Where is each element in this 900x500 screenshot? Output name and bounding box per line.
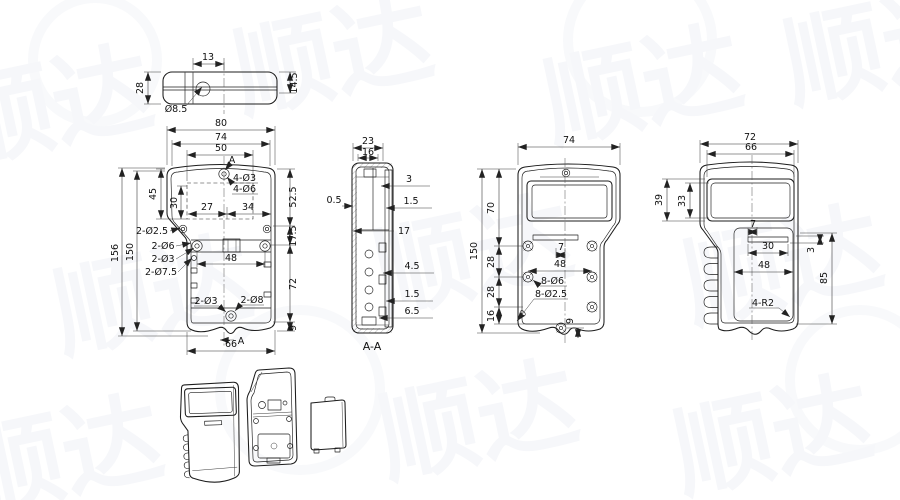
hole-label: 2-Ø6 [152, 241, 175, 252]
watermark-text: 顺达 [0, 28, 163, 184]
dim-label: 28 [486, 256, 497, 268]
dim-label: 33 [677, 195, 688, 207]
dim-label: 45 [148, 188, 159, 200]
dim-label: 48 [225, 253, 237, 264]
callout-4xO3-4xO6: 4-Ø3 4-Ø6 [227, 173, 258, 195]
hole-label: 8-Ø2.5 [535, 289, 567, 300]
dim-52-5: 52.5 [273, 169, 299, 226]
dim-label: 72 [288, 278, 299, 290]
dim-label: 48 [758, 260, 770, 271]
dim-label: 17 [398, 226, 410, 237]
watermark-text: 顺达 [223, 0, 443, 134]
dim-label: 9 [565, 318, 576, 324]
dim-66: 66 [707, 142, 794, 177]
dim-label: 74 [215, 132, 227, 143]
top-view-dim-13: 13 [193, 52, 224, 70]
dim-label: 156 [110, 244, 121, 262]
dim-label: 34 [242, 202, 254, 213]
dim-label: 48 [554, 259, 566, 270]
screw-boss [260, 241, 270, 251]
dim-label: 4.5 [404, 261, 419, 272]
dim-label: 28 [486, 286, 497, 298]
dim-label: 85 [819, 272, 830, 284]
dim-label: 9 [288, 325, 299, 331]
hole-label: 4-Ø3 [233, 173, 256, 184]
screw-boss [587, 302, 597, 312]
screw-boss [587, 272, 597, 282]
dim-label: 7 [558, 242, 564, 253]
dim-label: 6.5 [404, 306, 419, 317]
dim-label: 16 [486, 310, 497, 322]
dim-label: 17.5 [288, 225, 299, 246]
dim-label: 1.5 [404, 289, 419, 300]
isometric-battery-cover [311, 397, 346, 453]
dim-label: 23 [362, 136, 374, 147]
engineering-drawing-page: 顺达 顺达 顺达 顺达 顺达 顺达 顺达 顺达 顺达 顺达 13 [0, 0, 900, 500]
dim-label: 30 [169, 197, 180, 209]
dim-label: 7 [750, 219, 756, 230]
hole-label: 2-Ø2.5 [136, 226, 168, 237]
dim-label: 50 [215, 143, 227, 154]
hole-label: 2-Ø7.5 [145, 267, 177, 278]
hole-label: 2-Ø3 [195, 296, 218, 307]
dim-label: 52.5 [288, 186, 299, 207]
dim-label: 3 [806, 247, 817, 253]
hole-label: 2-Ø3 [152, 254, 175, 265]
dim-label: 74 [563, 135, 575, 146]
hole-label: Ø8.5 [165, 104, 188, 115]
callout-0-5: 0.5 [326, 195, 353, 206]
watermark-text: 顺达 [773, 0, 900, 124]
enclosure-drawing: 顺达 顺达 顺达 顺达 顺达 顺达 顺达 顺达 顺达 顺达 13 [0, 0, 900, 500]
dim-16: 16 [358, 147, 378, 161]
hole-label: 2-Ø8 [241, 295, 264, 306]
dim-label: 66 [225, 339, 237, 350]
section-title: A-A [363, 340, 382, 353]
dim-label: 13 [202, 52, 214, 63]
dim-label: 1.5 [403, 196, 418, 207]
radius-label: 4-R2 [752, 298, 774, 309]
dim-label: 150 [125, 243, 136, 261]
dim-label: 0.5 [326, 195, 341, 206]
iso-back-details [251, 372, 293, 463]
dim-label: 30 [762, 241, 774, 252]
dim-label: 80 [215, 118, 227, 129]
dim-label: 70 [486, 202, 497, 214]
hole-label: 8-Ø6 [541, 276, 564, 287]
dim-label: 27 [201, 202, 213, 213]
mounting-hole [196, 82, 210, 96]
dim-9: 9 [277, 322, 299, 331]
dim-label: 66 [745, 142, 757, 153]
section-arrow-top: A [225, 155, 236, 170]
dim-27-34: 27 34 [188, 202, 271, 219]
watermark-text: 顺达 [663, 358, 883, 500]
dim-label: 150 [469, 242, 480, 260]
iso-slot [205, 421, 222, 426]
watermark-text: 顺达 [368, 343, 588, 499]
hole-label: 4-Ø6 [233, 184, 256, 195]
dim-label: 14.5 [289, 72, 300, 93]
dim-label: 3 [406, 174, 412, 185]
iso-cover-outline [311, 400, 346, 450]
watermark-text: 顺达 [0, 378, 173, 500]
dim-9: 9 [565, 318, 584, 338]
section-mark: A [238, 336, 245, 347]
screw-boss [587, 241, 597, 251]
screw-boss [562, 169, 570, 177]
dim-label: 28 [135, 82, 146, 94]
screw-boss [263, 225, 271, 233]
dim-label: 16 [362, 147, 374, 158]
dim-label: 39 [654, 194, 665, 206]
